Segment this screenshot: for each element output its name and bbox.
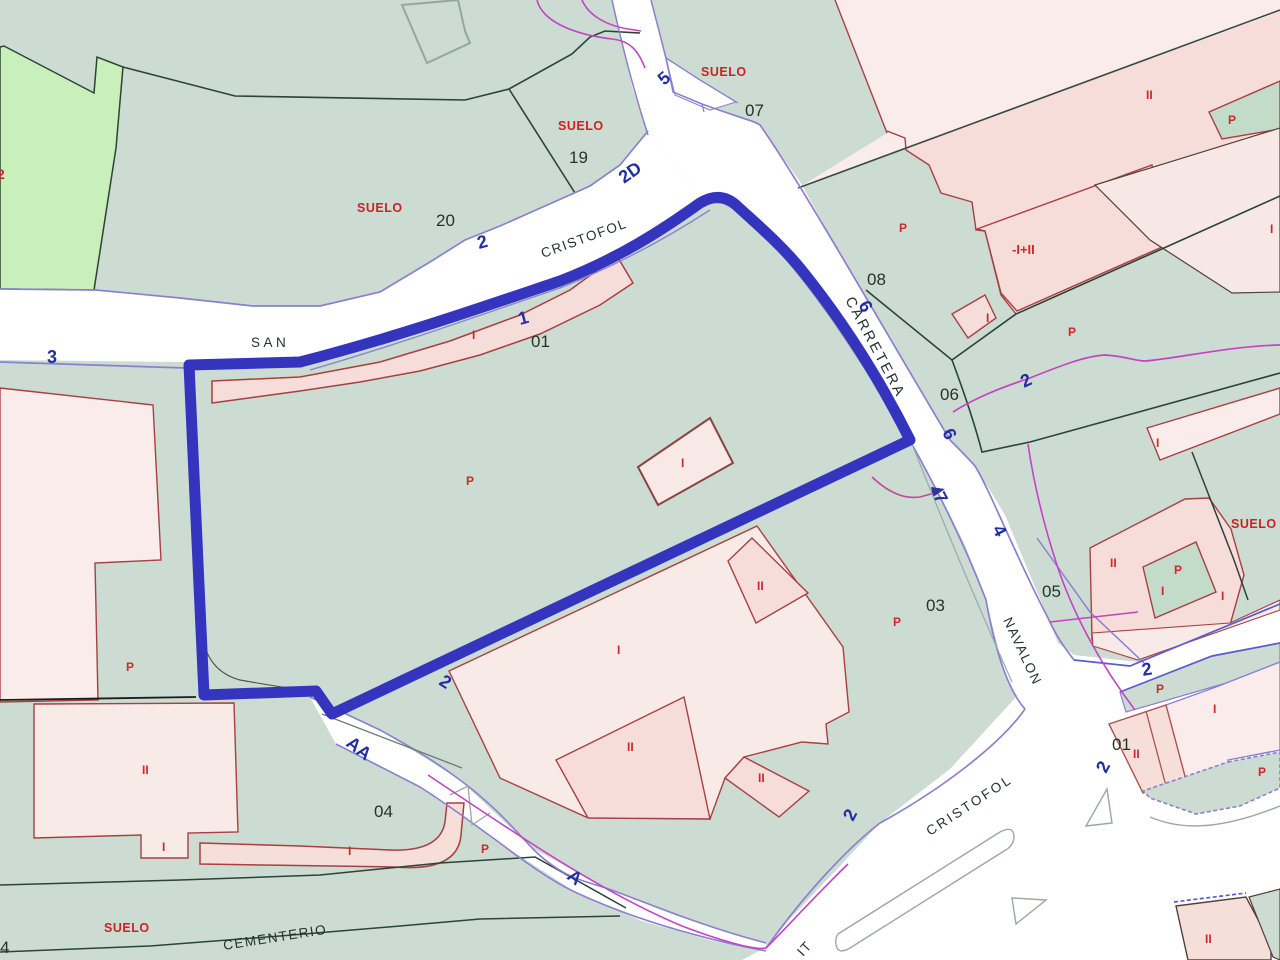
svg-text:I: I [1270, 222, 1273, 236]
svg-text:01: 01 [531, 332, 550, 351]
svg-text:II: II [142, 763, 149, 777]
svg-text:P: P [1228, 113, 1236, 127]
svg-text:P: P [481, 842, 489, 856]
svg-text:SUELO: SUELO [104, 921, 150, 935]
svg-text:I: I [986, 311, 989, 325]
svg-text:P: P [1258, 765, 1266, 779]
svg-text:01: 01 [1112, 735, 1131, 754]
svg-text:I: I [1156, 436, 1159, 450]
svg-text:4: 4 [0, 938, 9, 957]
svg-text:II: II [627, 740, 634, 754]
svg-text:05: 05 [1042, 582, 1061, 601]
svg-text:I: I [1221, 589, 1224, 603]
svg-text:07: 07 [745, 101, 764, 120]
svg-text:I: I [348, 844, 351, 858]
svg-text:I: I [1161, 584, 1164, 598]
svg-text:P: P [1174, 563, 1182, 577]
svg-text:II: II [1146, 88, 1153, 102]
svg-text:P: P [466, 474, 474, 488]
svg-text:P: P [126, 660, 134, 674]
svg-text:II: II [758, 771, 765, 785]
svg-text:II: II [757, 579, 764, 593]
svg-text:08: 08 [867, 270, 886, 289]
svg-text:04: 04 [374, 802, 393, 821]
svg-text:II: II [1205, 932, 1212, 946]
svg-text:I: I [681, 456, 684, 470]
svg-text:I: I [617, 643, 620, 657]
svg-text:SUELO: SUELO [558, 119, 604, 133]
svg-text:I: I [162, 840, 165, 854]
svg-text:20: 20 [436, 211, 455, 230]
svg-text:P: P [1156, 682, 1164, 696]
svg-text:SAN: SAN [251, 335, 289, 350]
svg-text:SUELO: SUELO [1231, 517, 1277, 531]
svg-text:SUELO: SUELO [357, 201, 403, 215]
svg-text:06: 06 [940, 385, 959, 404]
svg-text:P: P [893, 615, 901, 629]
svg-text:II: II [1110, 556, 1117, 570]
svg-text:03: 03 [926, 596, 945, 615]
svg-text:2: 2 [0, 166, 5, 182]
svg-text:P: P [899, 221, 907, 235]
svg-text:II: II [1133, 747, 1140, 761]
svg-text:P: P [1068, 325, 1076, 339]
svg-text:-I+II: -I+II [1012, 242, 1035, 257]
svg-text:3: 3 [47, 347, 57, 367]
svg-text:19: 19 [569, 148, 588, 167]
svg-text:I: I [1213, 702, 1216, 716]
svg-text:SUELO: SUELO [701, 65, 747, 79]
svg-text:I: I [472, 328, 475, 342]
